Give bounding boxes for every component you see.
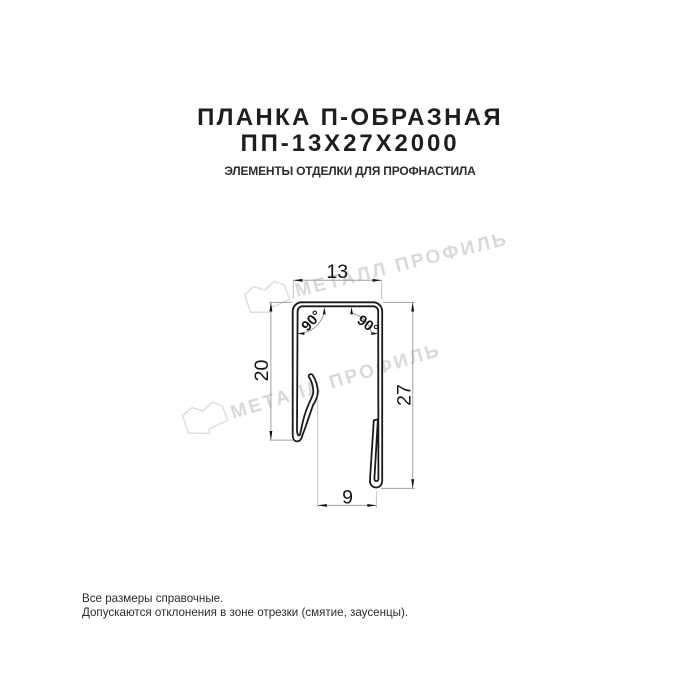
svg-text:9: 9 — [342, 487, 353, 509]
svg-text:27: 27 — [394, 384, 416, 406]
svg-text:90°: 90° — [299, 308, 326, 335]
svg-text:13: 13 — [326, 261, 348, 283]
svg-text:20: 20 — [251, 360, 273, 382]
svg-text:90°: 90° — [354, 312, 381, 338]
